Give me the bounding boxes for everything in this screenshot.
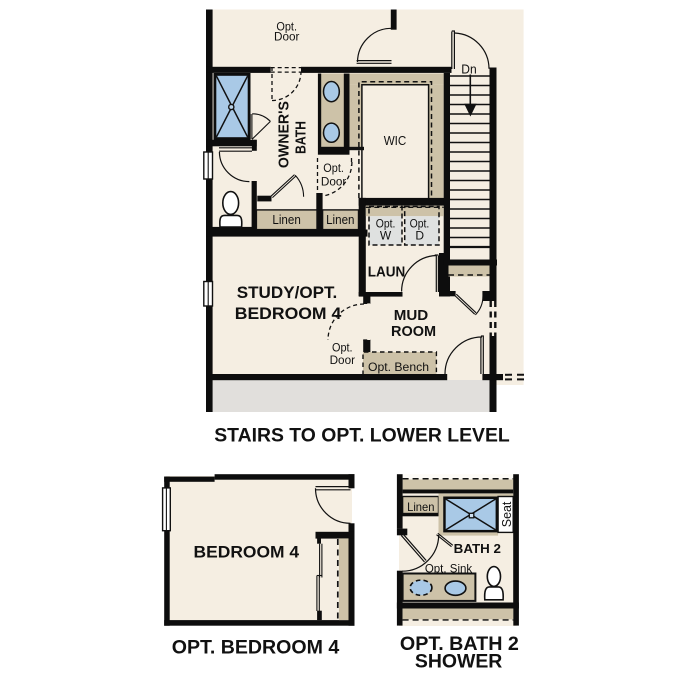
svg-text:STUDY/OPT.: STUDY/OPT. — [237, 284, 338, 302]
svg-text:SHOWER: SHOWER — [415, 651, 503, 672]
svg-text:BEDROOM 4: BEDROOM 4 — [235, 305, 342, 323]
svg-text:MUD: MUD — [394, 307, 429, 324]
svg-text:Opt.: Opt. — [323, 161, 344, 175]
svg-text:Door: Door — [330, 353, 355, 367]
svg-text:BATH 2: BATH 2 — [454, 541, 501, 556]
svg-text:Door: Door — [274, 30, 299, 44]
svg-text:Door: Door — [321, 174, 346, 188]
svg-text:LAUN: LAUN — [368, 265, 406, 281]
svg-text:Dn: Dn — [461, 62, 476, 76]
svg-text:STAIRS TO OPT. LOWER LEVEL: STAIRS TO OPT. LOWER LEVEL — [214, 425, 510, 446]
svg-text:ROOM: ROOM — [391, 323, 436, 340]
svg-text:Opt. Bench: Opt. Bench — [368, 360, 429, 374]
svg-text:Linen: Linen — [272, 213, 300, 227]
svg-text:W: W — [380, 229, 392, 243]
svg-text:Seat: Seat — [500, 501, 514, 527]
svg-text:OWNER'S: OWNER'S — [276, 101, 293, 168]
svg-text:BEDROOM 4: BEDROOM 4 — [194, 544, 300, 562]
svg-text:Linen: Linen — [326, 213, 354, 227]
svg-text:D: D — [415, 229, 424, 243]
svg-text:Linen: Linen — [407, 500, 434, 514]
svg-text:BATH: BATH — [292, 121, 309, 154]
svg-text:OPT. BEDROOM 4: OPT. BEDROOM 4 — [172, 638, 340, 659]
svg-text:WIC: WIC — [384, 133, 407, 148]
